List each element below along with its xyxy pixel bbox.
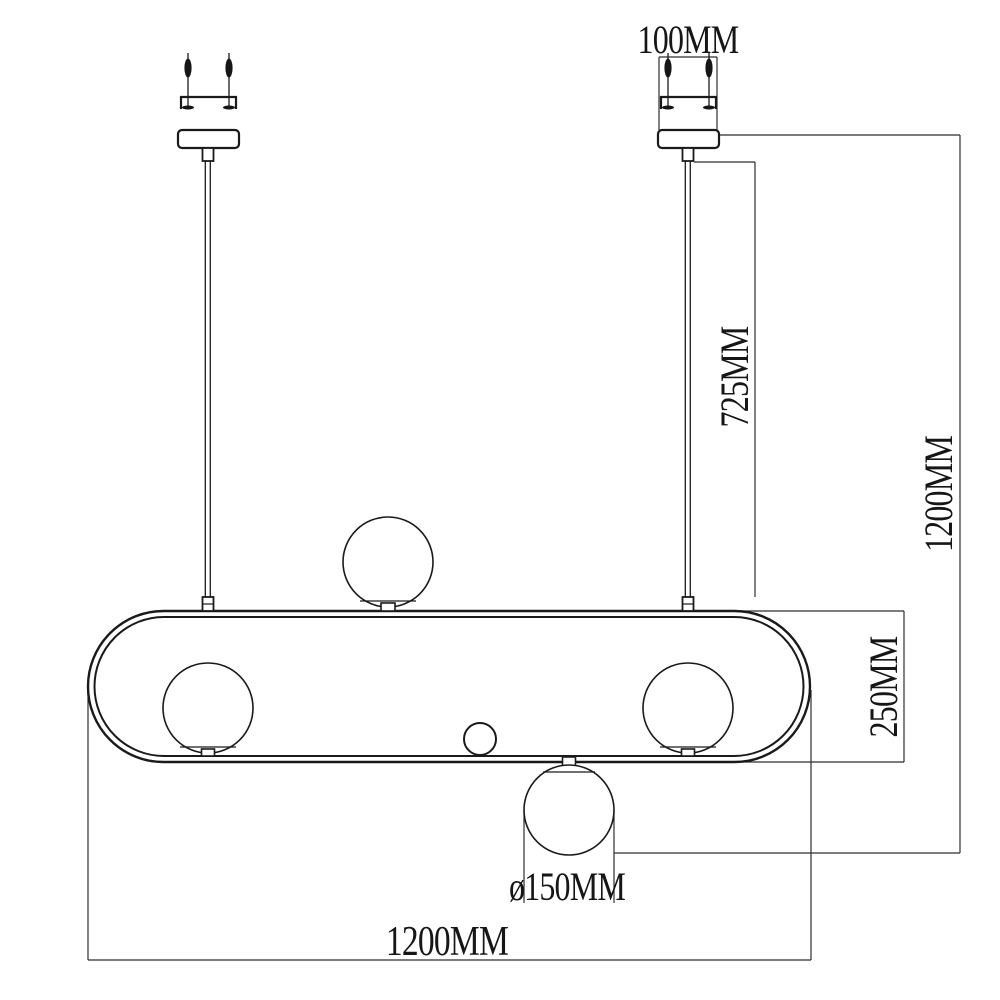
globe-top-base <box>381 603 395 611</box>
pendant-lamp-line-drawing <box>0 0 1000 1000</box>
globe-inside-right-base <box>682 749 695 756</box>
right-ceiling-mount <box>658 53 719 611</box>
small-bulb-circle <box>464 723 496 755</box>
globes <box>163 517 733 855</box>
globe-bottom <box>524 757 614 855</box>
globe-bottom-body <box>524 765 614 855</box>
dim-label-overall-height: 1200MM <box>919 436 959 552</box>
right-canopy-stem <box>683 148 694 161</box>
left-canopy <box>178 130 239 148</box>
left-ceiling-mount <box>178 53 239 611</box>
left-screw-right-anchor <box>225 59 232 78</box>
globe-inside-left-base <box>202 749 215 756</box>
globe-top-body <box>343 517 433 607</box>
left-canopy-stem <box>203 148 214 161</box>
left-screw-right-foot <box>223 106 235 110</box>
dimension-lines <box>88 57 960 960</box>
globe-inside-right <box>643 663 733 756</box>
dim-label-frame-height: 250MM <box>864 637 904 738</box>
technical-drawing-canvas: 100MM 725MM 1200MM 250MM ø150MM 1200MM <box>0 0 1000 1000</box>
globe-inside-right-body <box>643 663 733 753</box>
dim-label-mount-width: 100MM <box>638 20 739 60</box>
dim-label-overall-width: 1200MM <box>386 921 508 963</box>
right-canopy <box>658 130 719 148</box>
globe-inside-left <box>163 663 253 756</box>
left-screw-left-foot <box>182 106 194 110</box>
right-screw-right-foot <box>703 106 715 110</box>
globe-inside-left-body <box>163 663 253 753</box>
globe-top <box>343 517 433 611</box>
right-screw-left-foot <box>662 106 674 110</box>
left-screw-left-anchor <box>184 59 191 78</box>
dim-label-globe-diameter: ø150MM <box>509 867 625 907</box>
dim-label-rod-drop: 725MM <box>715 327 755 428</box>
